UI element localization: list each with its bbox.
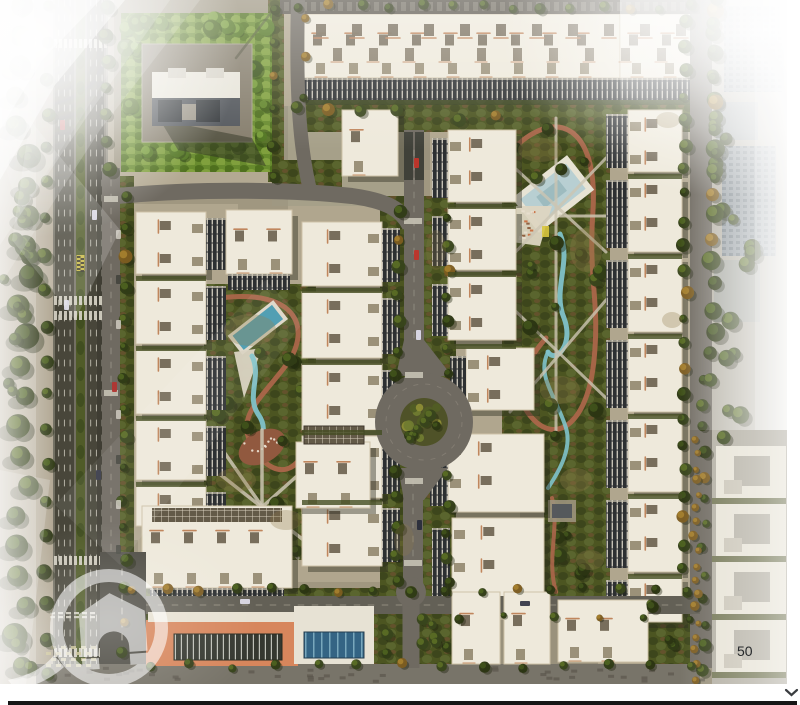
svg-text:50: 50 xyxy=(737,643,753,659)
